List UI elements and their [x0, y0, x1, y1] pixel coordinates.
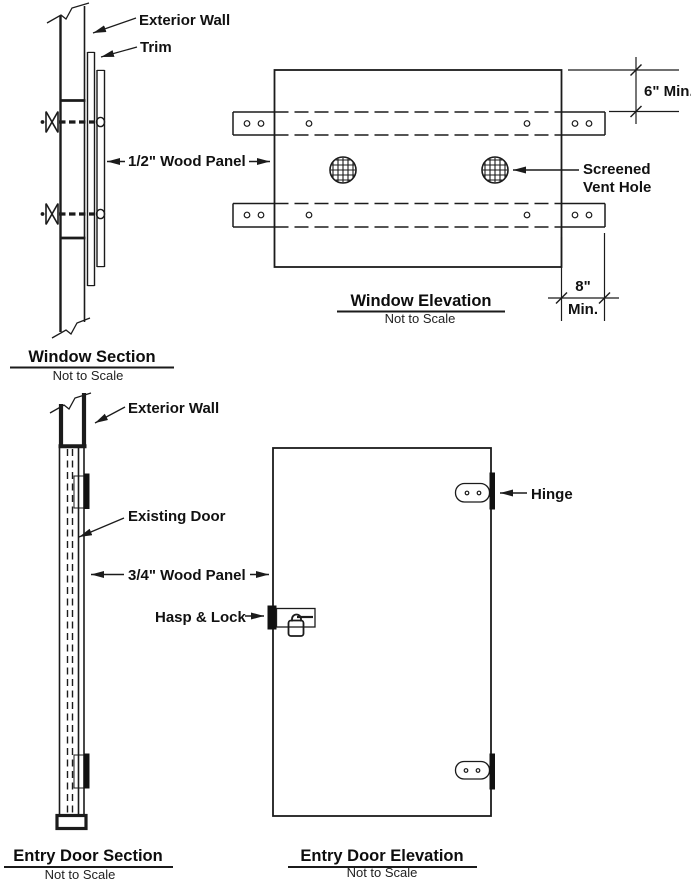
existing-door-label: Existing Door — [128, 508, 226, 525]
washer-icon — [41, 120, 45, 124]
panel-outline — [275, 70, 562, 267]
wing-nut-icon — [46, 204, 58, 225]
screened-vent-label-line1: Screened — [583, 161, 651, 178]
exterior-wall-leader-arrow — [95, 407, 125, 423]
exterior-wall-leader-arrow — [93, 18, 136, 33]
trim-label: Trim — [140, 39, 172, 56]
hinge-label: Hinge — [531, 486, 573, 503]
existing-door-leader-arrow — [79, 518, 124, 537]
window-section-subtitle: Not to Scale — [53, 368, 124, 383]
wood-panel-label: 3/4" Wood Panel — [128, 567, 246, 584]
hinge-screw-hole — [465, 491, 469, 495]
bottom-batten — [233, 204, 605, 228]
bolt-holes — [244, 212, 592, 218]
detail-drawing-canvas: Exterior Wall Trim 1/2" Wood Panel Windo… — [0, 0, 691, 883]
entry-door-section-subtitle: Not to Scale — [45, 867, 116, 882]
wall-break-line-top — [47, 3, 89, 23]
door-panel-outline — [273, 448, 491, 816]
bolt-holes — [244, 121, 592, 127]
dimension-6in-text: 6" Min. — [644, 83, 691, 100]
trim-leader-arrow — [101, 47, 137, 57]
hasp-and-lock — [268, 606, 316, 637]
hasp-hinge-block-icon — [268, 606, 277, 630]
hinge-pin-bar-icon — [490, 754, 496, 790]
wing-nut-icon — [46, 112, 58, 133]
dimension-8in-unit: Min. — [568, 301, 598, 318]
hinge-screw-hole — [464, 769, 468, 773]
dimension-8in-value: 8" — [575, 278, 590, 295]
window-section-title: Window Section — [28, 348, 155, 366]
hinge-section-upper — [74, 474, 90, 510]
entry-door-elevation-drawing: Hinge Entry Door Elevation Not to Scale — [268, 448, 573, 880]
entry-door-elevation-subtitle: Not to Scale — [347, 865, 418, 880]
dimension-8in-min: 8" Min. — [548, 233, 619, 321]
window-elevation-drawing: 6" Min. 8" Min. Screened Vent Hole Windo… — [233, 57, 691, 326]
hinge-upper — [456, 473, 496, 510]
hinge-strap-icon — [456, 762, 490, 780]
vent-screen-mesh-icon — [329, 156, 357, 184]
entry-door-elevation-title: Entry Door Elevation — [300, 847, 463, 865]
padlock-body-icon — [289, 621, 304, 637]
wood-panel-label: 1/2" Wood Panel — [128, 153, 246, 170]
trim-section-lines — [88, 52, 95, 286]
vent-screen-mesh-icon — [481, 156, 509, 184]
entry-door-section-drawing: Exterior Wall Existing Door 3/4" Wood Pa… — [4, 393, 269, 882]
window-elevation-subtitle: Not to Scale — [385, 311, 456, 326]
hinge-section-lower — [74, 754, 90, 789]
entry-door-section-title: Entry Door Section — [13, 847, 162, 865]
hinge-block-icon — [84, 754, 90, 789]
screened-vent-label-line2: Vent Hole — [583, 179, 651, 196]
window-elevation-title: Window Elevation — [350, 292, 491, 310]
top-batten — [233, 112, 605, 135]
hinge-screw-hole — [476, 769, 480, 773]
hinge-screw-hole — [477, 491, 481, 495]
washer-icon — [41, 212, 45, 216]
door-header-section — [59, 393, 87, 447]
dimension-6in-min: 6" Min. — [568, 57, 691, 124]
exterior-wall-label: Exterior Wall — [139, 12, 230, 29]
hinge-lower — [456, 754, 496, 790]
exterior-wall-label: Exterior Wall — [128, 400, 219, 417]
screened-vent-hole-left — [329, 156, 357, 184]
hinge-pin-bar-icon — [490, 473, 496, 510]
screened-vent-hole-right — [481, 156, 509, 184]
hasp-lock-label: Hasp & Lock — [155, 609, 247, 626]
wood-panel-section-lines — [97, 70, 105, 267]
construction-detail-sheet: Exterior Wall Trim 1/2" Wood Panel Windo… — [0, 0, 691, 883]
hinge-block-icon — [84, 474, 90, 510]
hinge-strap-icon — [456, 484, 490, 503]
threshold-section — [57, 816, 86, 829]
window-section-drawing: Exterior Wall Trim 1/2" Wood Panel Windo… — [10, 3, 270, 383]
